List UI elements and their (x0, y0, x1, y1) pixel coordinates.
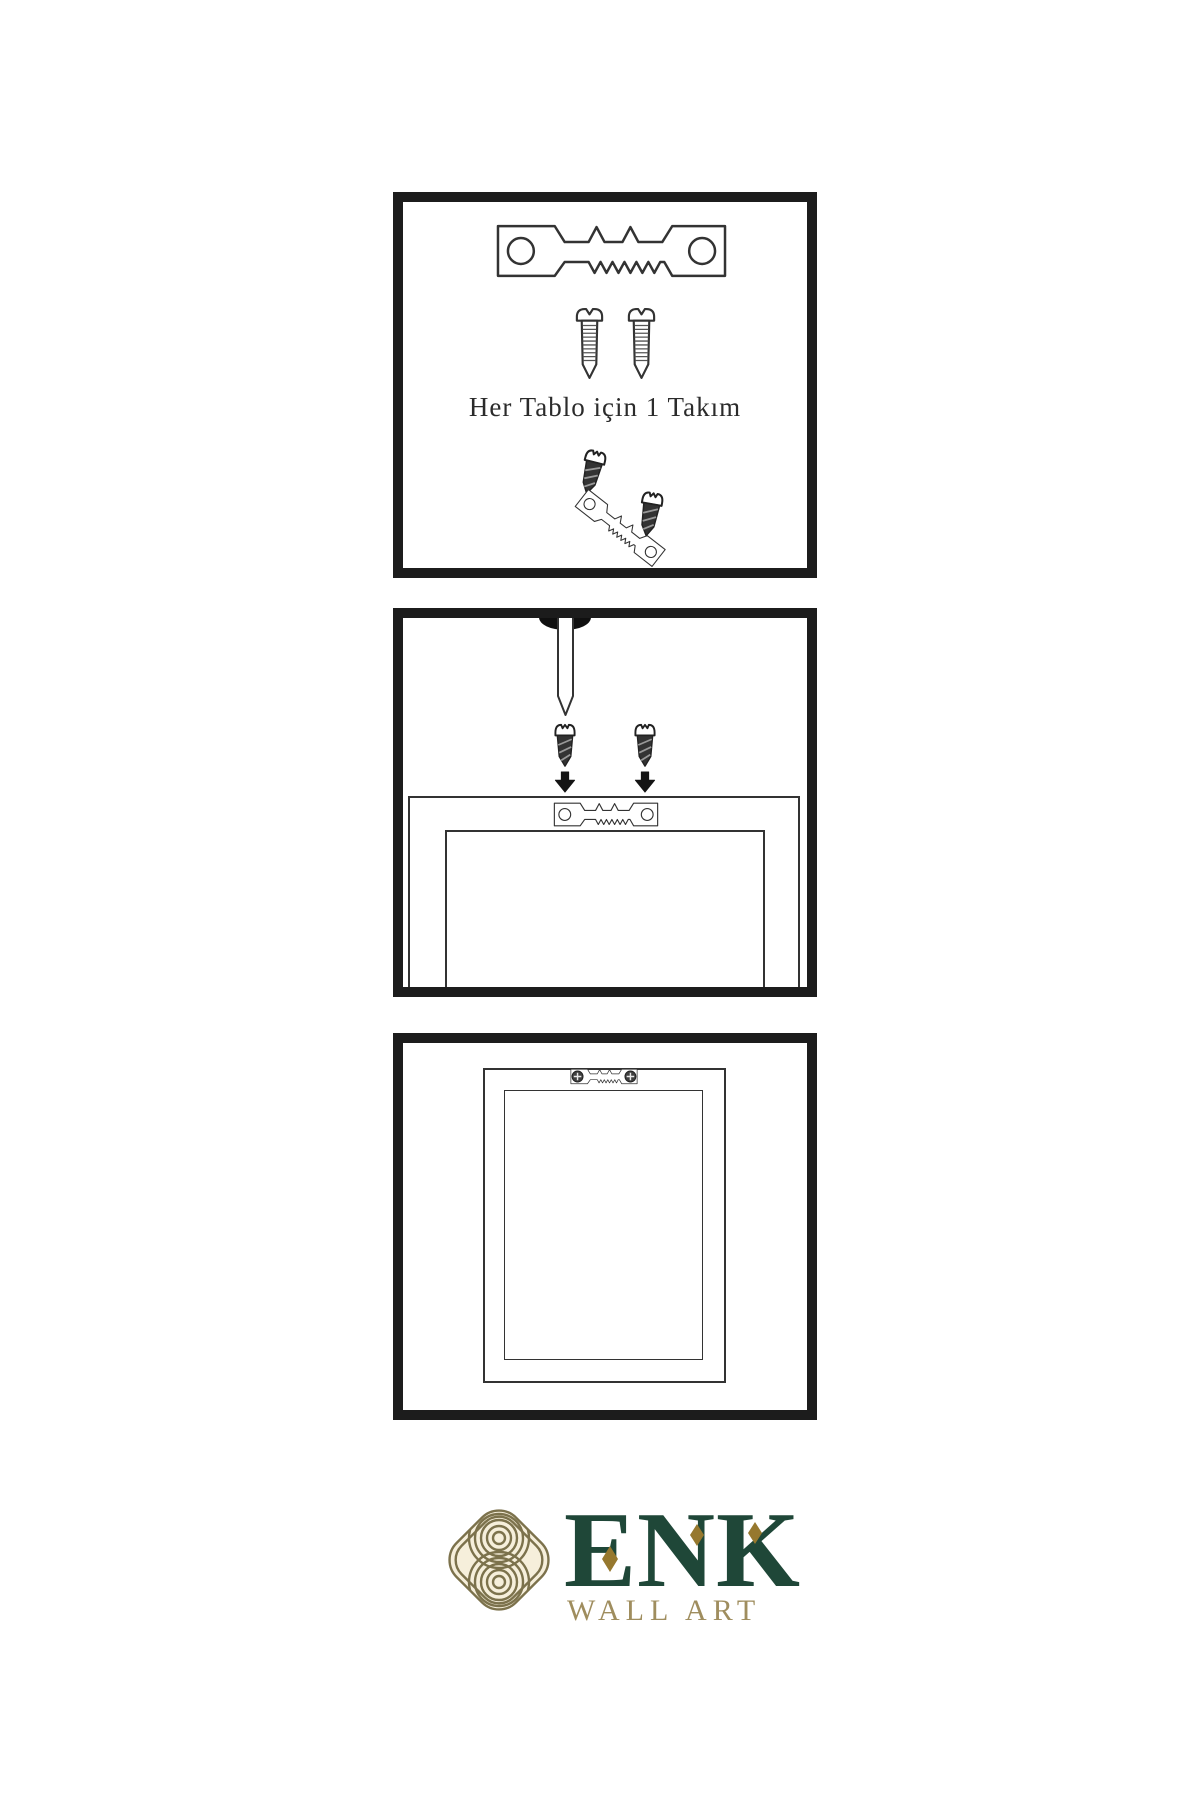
machine-screw-icon (573, 305, 606, 381)
arrow-down-icon (633, 771, 657, 793)
wood-screw-icon (551, 722, 579, 768)
brand-tagline: WALL ART (567, 1594, 827, 1628)
wall-nail-icon (553, 616, 578, 718)
brand-name: ENK (564, 1497, 801, 1605)
frame-back-inner-edge (445, 830, 765, 997)
wood-screw-icon (631, 488, 669, 540)
enk-knot-monogram-icon (437, 1492, 561, 1628)
phillips-screw-head-icon (625, 1071, 636, 1082)
instruction-sheet: { "page": { "background": "#ffffff", "di… (0, 0, 1200, 1800)
brand-logo: ENK WALL ART (437, 1490, 817, 1640)
step1-caption: Her Tablo için 1 Takım (403, 392, 807, 423)
sawtooth-hanger-icon (495, 222, 728, 280)
sawtooth-hanger-icon (553, 801, 659, 828)
sawtooth-hanger-with-screws-icon (570, 1065, 638, 1088)
wood-screw-icon (631, 722, 659, 768)
machine-screw-icon (625, 305, 658, 381)
arrow-down-icon (553, 771, 577, 793)
phillips-screw-head-icon (572, 1071, 583, 1082)
step1-hardware-panel: Her Tablo için 1 Takım (393, 192, 817, 578)
step3-finished-panel (393, 1033, 817, 1420)
step2-mounting-panel (393, 608, 817, 997)
frame-back-inner-edge (504, 1090, 703, 1360)
